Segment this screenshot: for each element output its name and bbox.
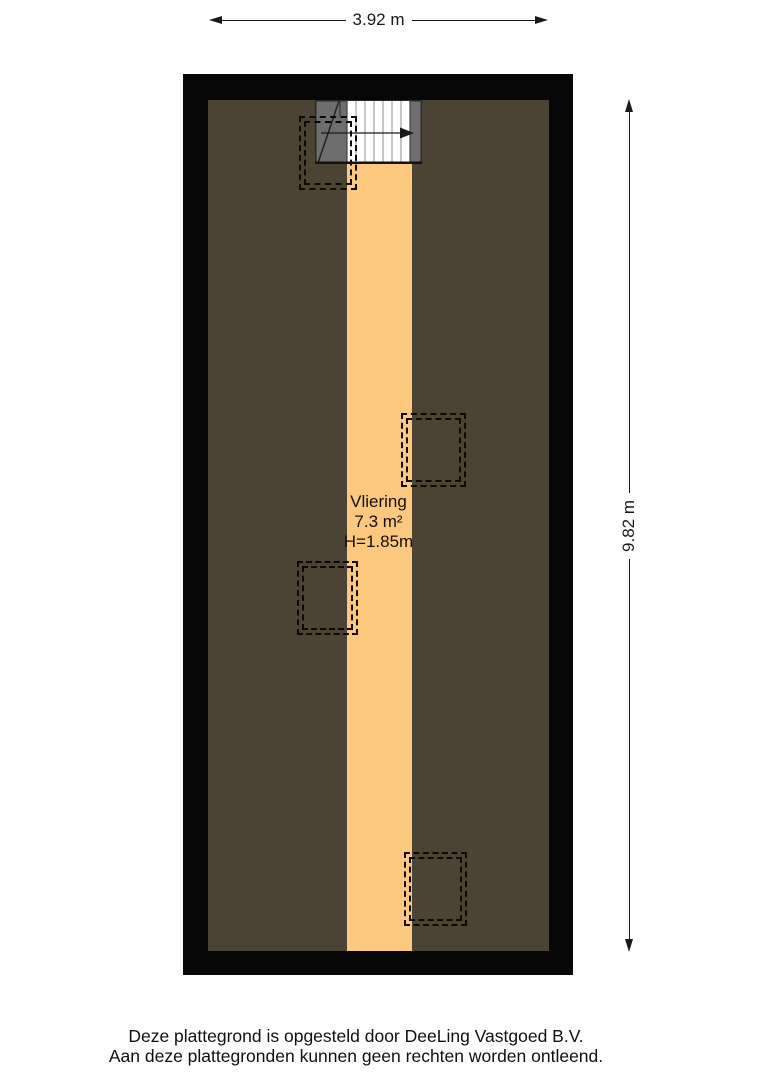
arrow-left-icon [209, 16, 222, 24]
footer-line-2: Aan deze plattegronden kunnen geen recht… [0, 1046, 712, 1066]
height-dimension-label: 9.82 m [619, 493, 639, 559]
dimension-line [629, 559, 630, 940]
dimension-line [222, 20, 346, 21]
room-name: Vliering [208, 492, 549, 512]
arrow-right-icon [535, 16, 548, 24]
roof-opening-dashed-outline-2 [302, 566, 353, 630]
roof-opening-dashed-outline-3 [409, 857, 462, 921]
room-height-clearance: H=1.85m [208, 532, 549, 552]
footer-line-1: Deze plattegrond is opgesteld door DeeLi… [0, 1026, 712, 1046]
arrow-up-icon [625, 99, 633, 112]
footer-disclaimer: Deze plattegrond is opgesteld door DeeLi… [0, 1026, 712, 1066]
room-area: 7.3 m² [208, 512, 549, 532]
dimension-line [412, 20, 536, 21]
width-dimension: 3.92 m [209, 8, 548, 32]
attic-floor-area: Vliering 7.3 m² H=1.85m [208, 100, 549, 951]
room-label: Vliering 7.3 m² H=1.85m [208, 492, 549, 552]
roof-opening-dashed-outline-1 [406, 418, 461, 482]
dimension-line [629, 112, 630, 493]
arrow-down-icon [625, 939, 633, 952]
width-dimension-label: 3.92 m [346, 10, 412, 30]
floorplan-wall-outline: Vliering 7.3 m² H=1.85m [183, 74, 573, 975]
walkable-landing-strip [347, 164, 412, 951]
stair-headroom-dashed-outline [304, 121, 352, 185]
height-dimension: 9.82 m [617, 99, 641, 952]
